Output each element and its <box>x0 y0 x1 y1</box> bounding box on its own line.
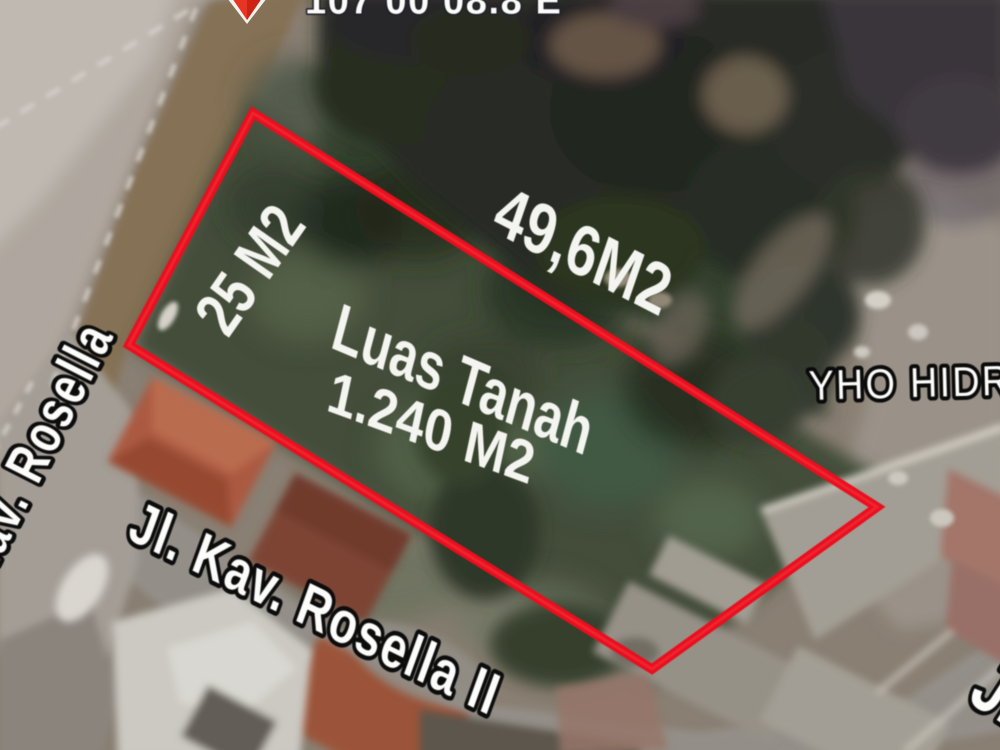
svg-text:107 00 08.8 E: 107 00 08.8 E <box>305 0 562 23</box>
svg-text:YHO HIDRO: YHO HIDRO <box>808 357 1000 409</box>
